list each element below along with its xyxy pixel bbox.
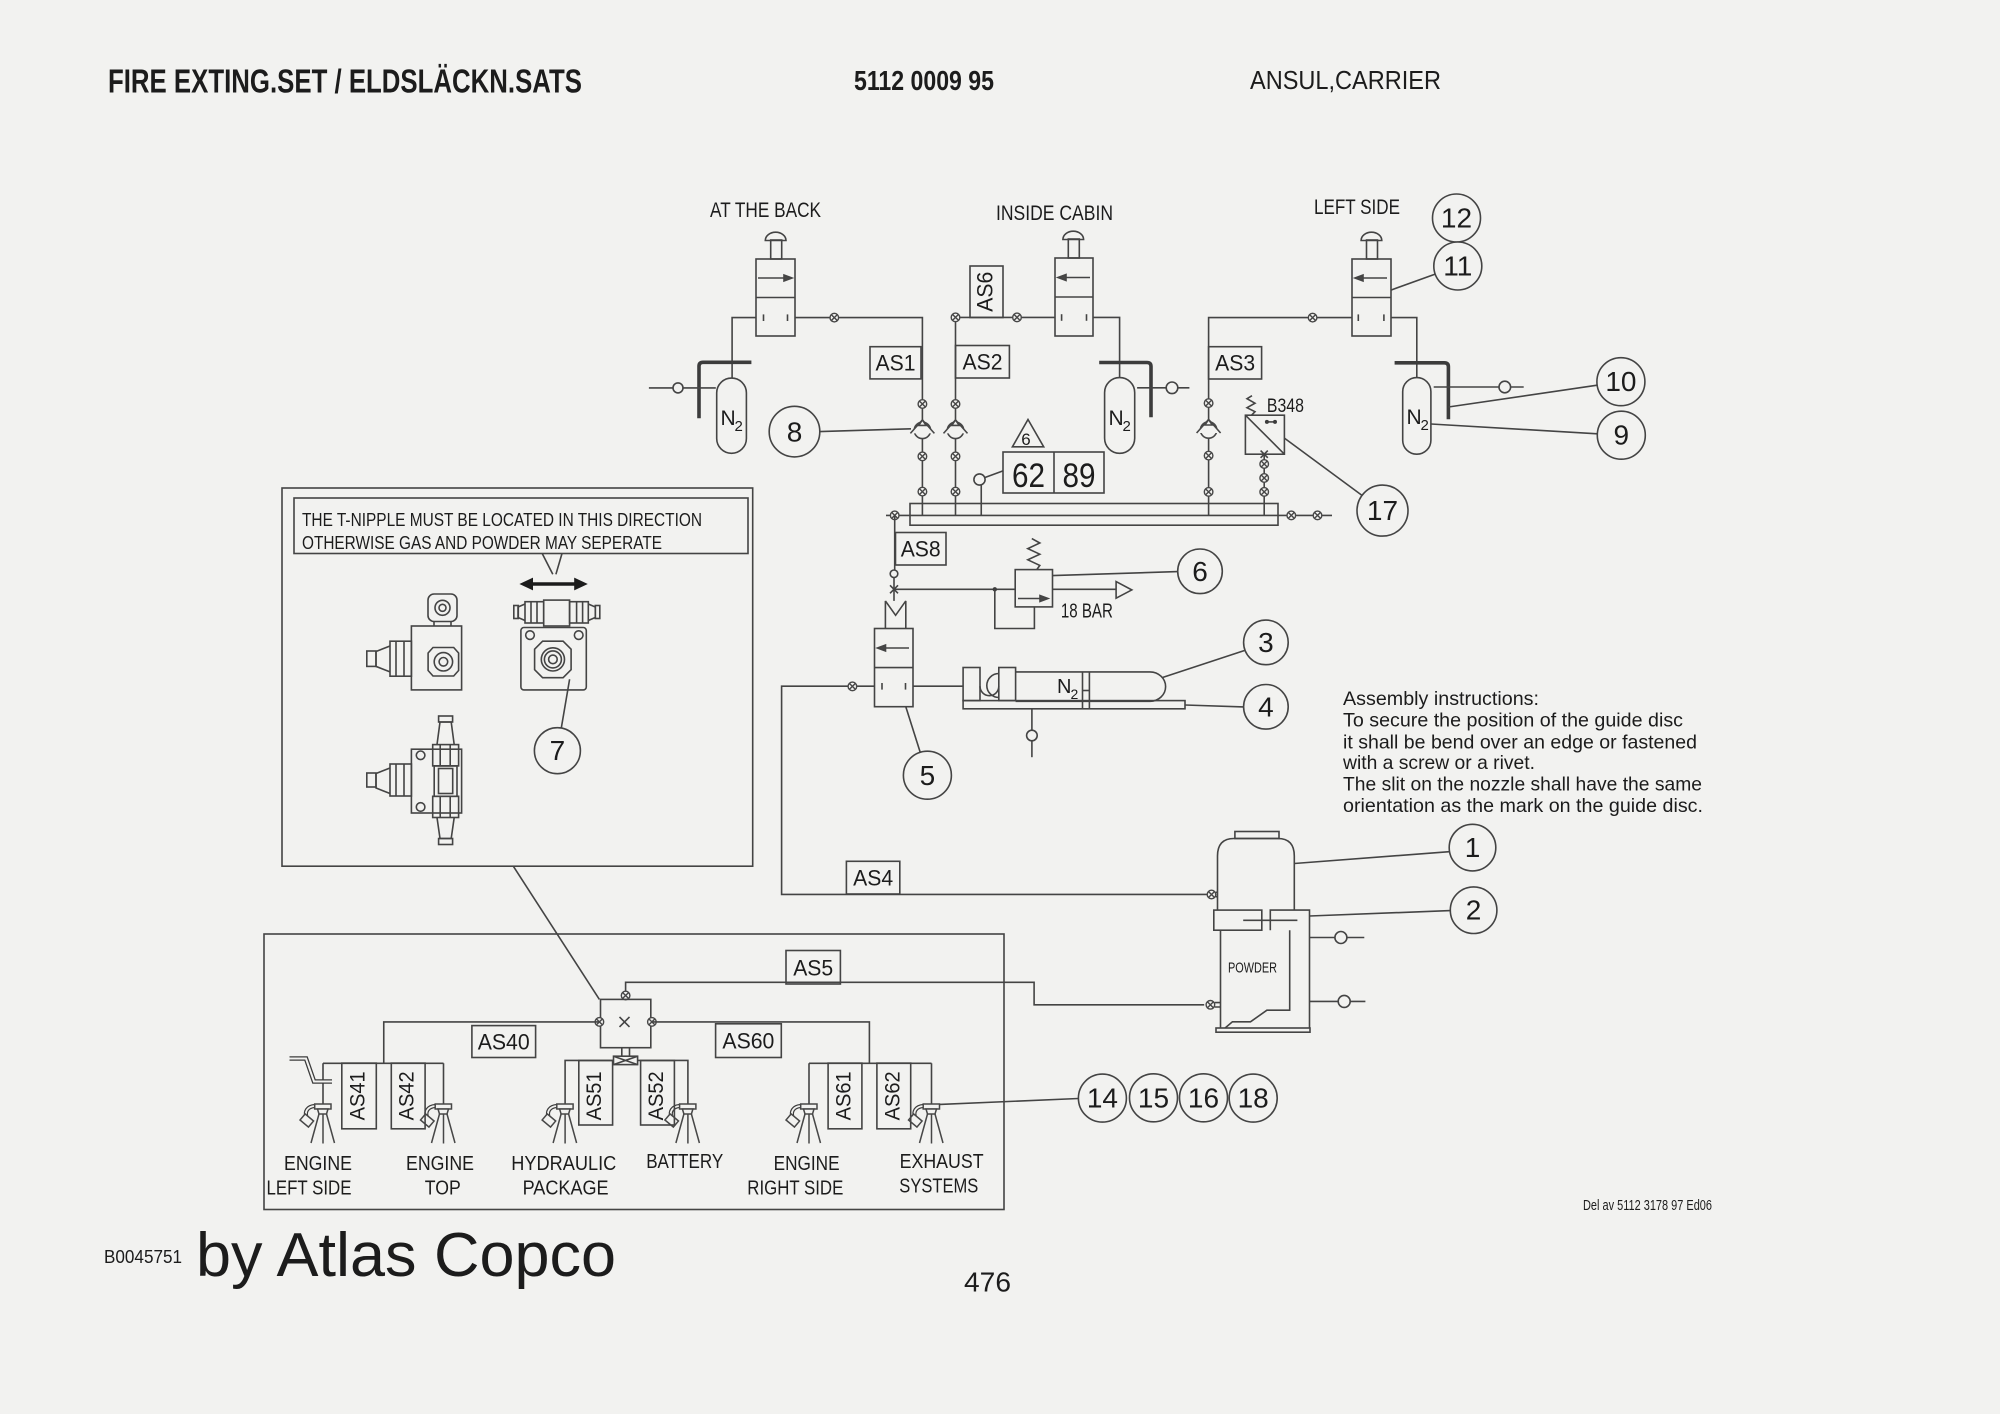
- svg-text:ENGINE: ENGINE: [284, 1153, 352, 1175]
- svg-text:LEFT SIDE: LEFT SIDE: [267, 1178, 352, 1200]
- svg-text:11: 11: [1443, 251, 1472, 282]
- svg-text:62: 62: [1012, 457, 1045, 495]
- svg-text:476: 476: [964, 1267, 1011, 1298]
- svg-text:SYSTEMS: SYSTEMS: [899, 1176, 978, 1198]
- svg-text:5: 5: [920, 760, 936, 791]
- svg-text:16: 16: [1188, 1082, 1219, 1113]
- svg-text:2: 2: [1123, 418, 1131, 435]
- svg-text:ENGINE: ENGINE: [406, 1153, 474, 1175]
- svg-text:AS2: AS2: [963, 350, 1003, 375]
- svg-text:TOP: TOP: [425, 1178, 461, 1200]
- svg-text:15: 15: [1138, 1082, 1169, 1113]
- svg-text:AS40: AS40: [478, 1030, 530, 1055]
- svg-text:EXHAUST: EXHAUST: [900, 1151, 984, 1173]
- svg-text:AS3: AS3: [1215, 351, 1255, 376]
- svg-text:Assembly instructions:: Assembly instructions:: [1343, 688, 1539, 710]
- svg-text:AS1: AS1: [876, 351, 916, 376]
- svg-text:POWDER: POWDER: [1228, 960, 1277, 977]
- svg-text:LEFT SIDE: LEFT SIDE: [1314, 196, 1400, 219]
- svg-text:6: 6: [1192, 556, 1208, 587]
- svg-text:6: 6: [1021, 430, 1030, 449]
- svg-text:BATTERY: BATTERY: [646, 1151, 723, 1173]
- svg-text:AS52: AS52: [645, 1071, 668, 1120]
- svg-text:To secure the position of the: To secure the position of the guide disc: [1343, 710, 1683, 732]
- svg-text:14: 14: [1087, 1083, 1118, 1114]
- svg-text:B348: B348: [1267, 396, 1304, 417]
- svg-text:AS62: AS62: [881, 1071, 904, 1120]
- svg-text:The slit on the nozzle shall h: The slit on the nozzle shall have the sa…: [1343, 774, 1702, 796]
- svg-text:with a screw or a rivet.: with a screw or a rivet.: [1342, 752, 1535, 774]
- svg-text:10: 10: [1605, 366, 1636, 397]
- svg-text:18: 18: [1238, 1083, 1269, 1114]
- svg-text:orientation as the mark on the: orientation as the mark on the guide dis…: [1343, 795, 1703, 817]
- svg-text:OTHERWISE GAS AND POWDER MAY S: OTHERWISE GAS AND POWDER MAY SEPERATE: [302, 532, 662, 553]
- svg-text:5112 0009 95: 5112 0009 95: [854, 65, 994, 96]
- svg-text:HYDRAULIC: HYDRAULIC: [511, 1153, 616, 1175]
- svg-text:2: 2: [1421, 417, 1429, 434]
- svg-text:AS60: AS60: [722, 1029, 774, 1054]
- svg-text:12: 12: [1441, 203, 1472, 234]
- svg-text:Del av 5112 3178 97 Ed06: Del av 5112 3178 97 Ed06: [1583, 1198, 1712, 1214]
- svg-text:FIRE EXTING.SET / ELDSLÄCKN.SA: FIRE EXTING.SET / ELDSLÄCKN.SATS: [108, 64, 582, 101]
- svg-text:ENGINE: ENGINE: [774, 1153, 840, 1175]
- svg-text:4: 4: [1258, 691, 1274, 722]
- svg-text:N: N: [1057, 676, 1071, 698]
- svg-text:89: 89: [1063, 457, 1096, 495]
- svg-text:N: N: [721, 407, 736, 430]
- svg-text:ANSUL,CARRIER: ANSUL,CARRIER: [1250, 65, 1441, 95]
- svg-text:it shall be bend over an edge: it shall be bend over an edge or fastene…: [1343, 732, 1697, 754]
- svg-text:INSIDE CABIN: INSIDE CABIN: [996, 202, 1113, 225]
- svg-text:by Atlas Copco: by Atlas Copco: [196, 1221, 616, 1290]
- svg-text:2: 2: [1071, 686, 1079, 702]
- svg-text:B0045751: B0045751: [104, 1247, 182, 1267]
- svg-text:THE T-NIPPLE MUST BE LOCATED I: THE T-NIPPLE MUST BE LOCATED IN THIS DIR…: [302, 509, 702, 530]
- svg-text:AS42: AS42: [396, 1071, 419, 1120]
- svg-text:AS51: AS51: [583, 1071, 606, 1120]
- svg-text:AS5: AS5: [793, 956, 833, 981]
- svg-text:9: 9: [1614, 420, 1630, 451]
- svg-text:AT THE BACK: AT THE BACK: [710, 199, 821, 222]
- svg-text:N: N: [1109, 407, 1124, 430]
- svg-text:2: 2: [735, 418, 743, 435]
- svg-text:AS61: AS61: [833, 1071, 856, 1120]
- svg-text:AS4: AS4: [853, 866, 893, 891]
- svg-text:18 BAR: 18 BAR: [1061, 601, 1113, 623]
- svg-text:17: 17: [1367, 495, 1398, 526]
- svg-text:AS6: AS6: [972, 272, 997, 312]
- svg-text:N: N: [1407, 406, 1422, 429]
- svg-text:8: 8: [787, 417, 803, 448]
- svg-text:3: 3: [1258, 627, 1274, 658]
- svg-text:PACKAGE: PACKAGE: [523, 1178, 609, 1200]
- svg-text:2: 2: [1466, 895, 1482, 926]
- svg-text:1: 1: [1465, 832, 1481, 863]
- svg-text:7: 7: [550, 735, 566, 766]
- svg-text:AS8: AS8: [901, 537, 941, 562]
- svg-text:AS41: AS41: [347, 1071, 370, 1120]
- svg-text:RIGHT SIDE: RIGHT SIDE: [747, 1178, 843, 1200]
